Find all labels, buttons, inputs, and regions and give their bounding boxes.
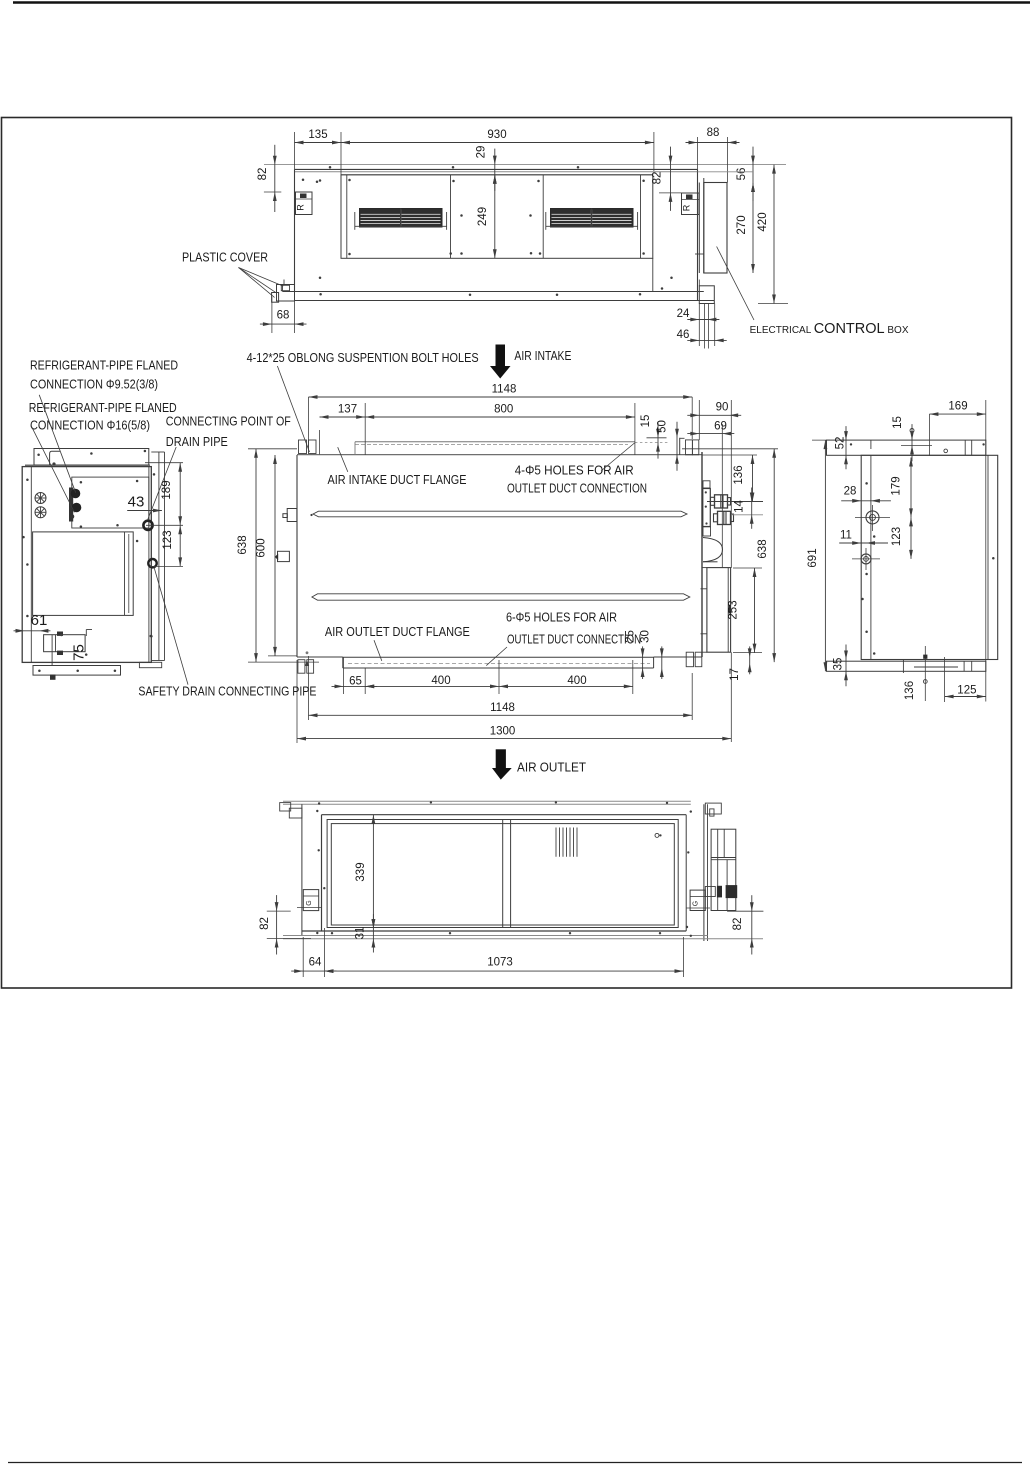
svg-text:17: 17 xyxy=(729,668,741,681)
svg-text:AIR OUTLET: AIR OUTLET xyxy=(517,760,586,775)
svg-text:29: 29 xyxy=(476,146,488,159)
svg-text:400: 400 xyxy=(431,675,450,687)
svg-text:46: 46 xyxy=(677,329,690,341)
svg-text:REFRIGERANT-PIPE FLANED: REFRIGERANT-PIPE FLANED xyxy=(29,400,177,415)
svg-text:68: 68 xyxy=(277,310,290,322)
svg-text:CONNECTION Φ9.52(3/8): CONNECTION Φ9.52(3/8) xyxy=(30,377,158,392)
svg-text:136: 136 xyxy=(904,681,916,700)
svg-text:11: 11 xyxy=(840,530,852,542)
svg-text:65: 65 xyxy=(349,676,362,688)
svg-text:PLASTIC COVER: PLASTIC COVER xyxy=(182,250,268,265)
svg-text:OUTLET DUCT CONNECTION: OUTLET DUCT CONNECTION xyxy=(507,481,647,496)
svg-text:AIR INTAKE: AIR INTAKE xyxy=(514,348,571,363)
svg-text:82: 82 xyxy=(257,168,269,181)
svg-text:28: 28 xyxy=(844,486,857,498)
svg-text:REFRIGERANT-PIPE FLANED: REFRIGERANT-PIPE FLANED xyxy=(30,358,178,373)
svg-text:50: 50 xyxy=(657,420,669,433)
svg-text:253: 253 xyxy=(728,600,740,619)
svg-text:137: 137 xyxy=(338,404,357,416)
svg-text:CONNECTION Φ16(5/8): CONNECTION Φ16(5/8) xyxy=(30,418,150,433)
svg-text:4-12*25 OBLONG SUSPENTION BOLT: 4-12*25 OBLONG SUSPENTION BOLT HOLES xyxy=(247,350,479,365)
svg-text:31: 31 xyxy=(355,927,367,940)
svg-text:1073: 1073 xyxy=(487,957,513,969)
svg-text:82: 82 xyxy=(259,917,271,930)
svg-text:24: 24 xyxy=(677,308,690,320)
svg-text:OUTLET DUCT CONNECTION: OUTLET DUCT CONNECTION xyxy=(507,632,641,647)
svg-text:DRAIN PIPE: DRAIN PIPE xyxy=(166,434,228,449)
svg-text:638: 638 xyxy=(757,539,769,558)
svg-text:420: 420 xyxy=(757,212,769,231)
svg-text:135: 135 xyxy=(308,129,327,141)
svg-text:123: 123 xyxy=(891,527,903,546)
svg-text:G: G xyxy=(693,901,700,906)
svg-text:82: 82 xyxy=(732,918,744,931)
svg-text:169: 169 xyxy=(948,401,967,413)
svg-text:136: 136 xyxy=(733,465,745,484)
svg-text:189: 189 xyxy=(161,480,173,499)
svg-text:249: 249 xyxy=(477,207,489,226)
svg-text:123: 123 xyxy=(162,530,174,549)
svg-text:179: 179 xyxy=(891,476,903,495)
svg-text:6-Φ5 HOLES FOR AIR: 6-Φ5 HOLES FOR AIR xyxy=(506,610,617,625)
svg-text:R: R xyxy=(682,204,692,211)
svg-text:90: 90 xyxy=(716,402,729,414)
svg-text:56: 56 xyxy=(736,168,748,181)
svg-text:SAFETY DRAIN CONNECTING PIPE: SAFETY DRAIN CONNECTING PIPE xyxy=(138,684,316,699)
svg-text:52: 52 xyxy=(835,437,847,450)
svg-text:339: 339 xyxy=(355,862,367,881)
svg-text:1300: 1300 xyxy=(490,725,516,737)
svg-text:600: 600 xyxy=(256,538,268,557)
svg-text:61: 61 xyxy=(31,612,48,629)
svg-text:69: 69 xyxy=(714,421,727,433)
svg-text:35: 35 xyxy=(833,658,845,671)
svg-text:75: 75 xyxy=(71,644,88,661)
svg-text:G: G xyxy=(306,900,313,905)
svg-text:64: 64 xyxy=(309,957,322,969)
svg-text:15: 15 xyxy=(640,415,652,428)
svg-text:800: 800 xyxy=(494,404,513,416)
svg-text:R: R xyxy=(296,204,306,211)
svg-text:4-Φ5 HOLES FOR AIR: 4-Φ5 HOLES FOR AIR xyxy=(515,463,634,478)
svg-text:CONNECTING POINT OF: CONNECTING POINT OF xyxy=(166,414,291,429)
svg-text:400: 400 xyxy=(567,675,586,687)
svg-text:AIR INTAKE DUCT FLANGE: AIR INTAKE DUCT FLANGE xyxy=(328,472,467,487)
svg-text:930: 930 xyxy=(487,129,506,141)
svg-text:1148: 1148 xyxy=(492,384,517,396)
svg-text:125: 125 xyxy=(957,684,976,696)
svg-text:15: 15 xyxy=(892,416,904,429)
svg-text:AIR OUTLET DUCT FLANGE: AIR OUTLET DUCT FLANGE xyxy=(325,624,470,639)
svg-text:14: 14 xyxy=(734,500,746,513)
svg-text:691: 691 xyxy=(807,548,819,567)
svg-text:43: 43 xyxy=(128,494,145,511)
svg-text:270: 270 xyxy=(736,215,748,234)
svg-text:88: 88 xyxy=(707,127,720,139)
svg-text:30: 30 xyxy=(640,630,652,643)
svg-text:1148: 1148 xyxy=(490,702,515,714)
svg-text:82: 82 xyxy=(652,172,664,185)
svg-text:638: 638 xyxy=(237,535,249,554)
